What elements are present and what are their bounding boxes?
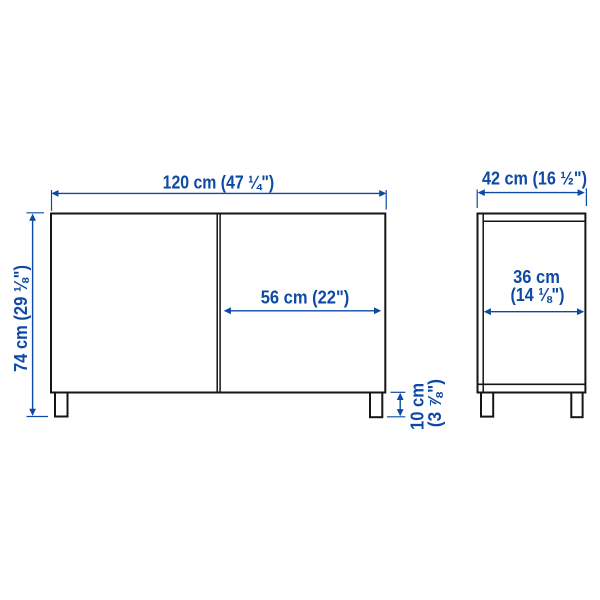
svg-text:42 cm (16 ½"): 42 cm (16 ½") [482,167,587,188]
svg-text:74 cm (29 ⅛"): 74 cm (29 ⅛") [10,265,31,372]
svg-text:(14 ⅛"): (14 ⅛") [511,284,565,305]
svg-text:120 cm (47 ¼"): 120 cm (47 ¼") [163,171,275,192]
svg-text:(3 ⅞"): (3 ⅞") [424,379,445,427]
svg-text:56 cm (22"): 56 cm (22") [261,286,350,307]
